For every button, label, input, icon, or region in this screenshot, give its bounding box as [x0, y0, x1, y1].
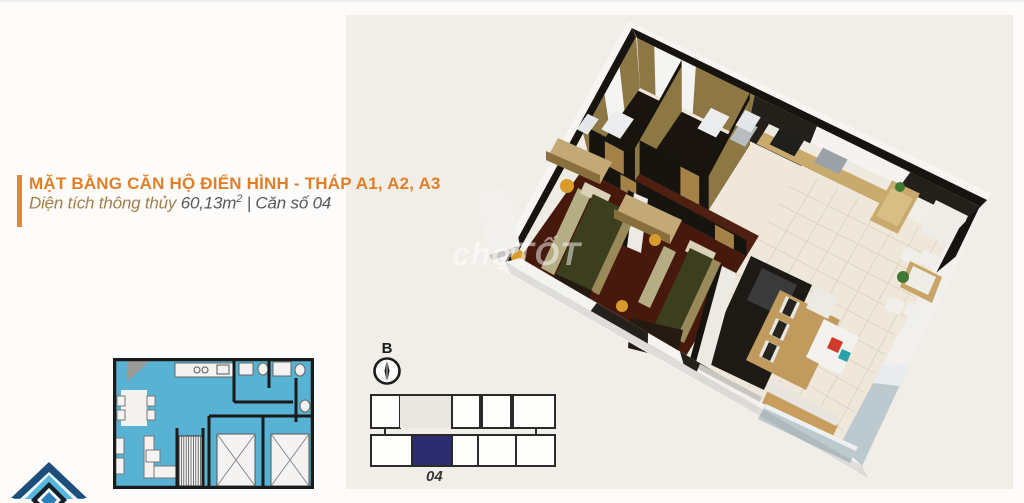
svg-text:04: 04 — [426, 468, 443, 485]
svg-text:B: B — [382, 340, 393, 357]
